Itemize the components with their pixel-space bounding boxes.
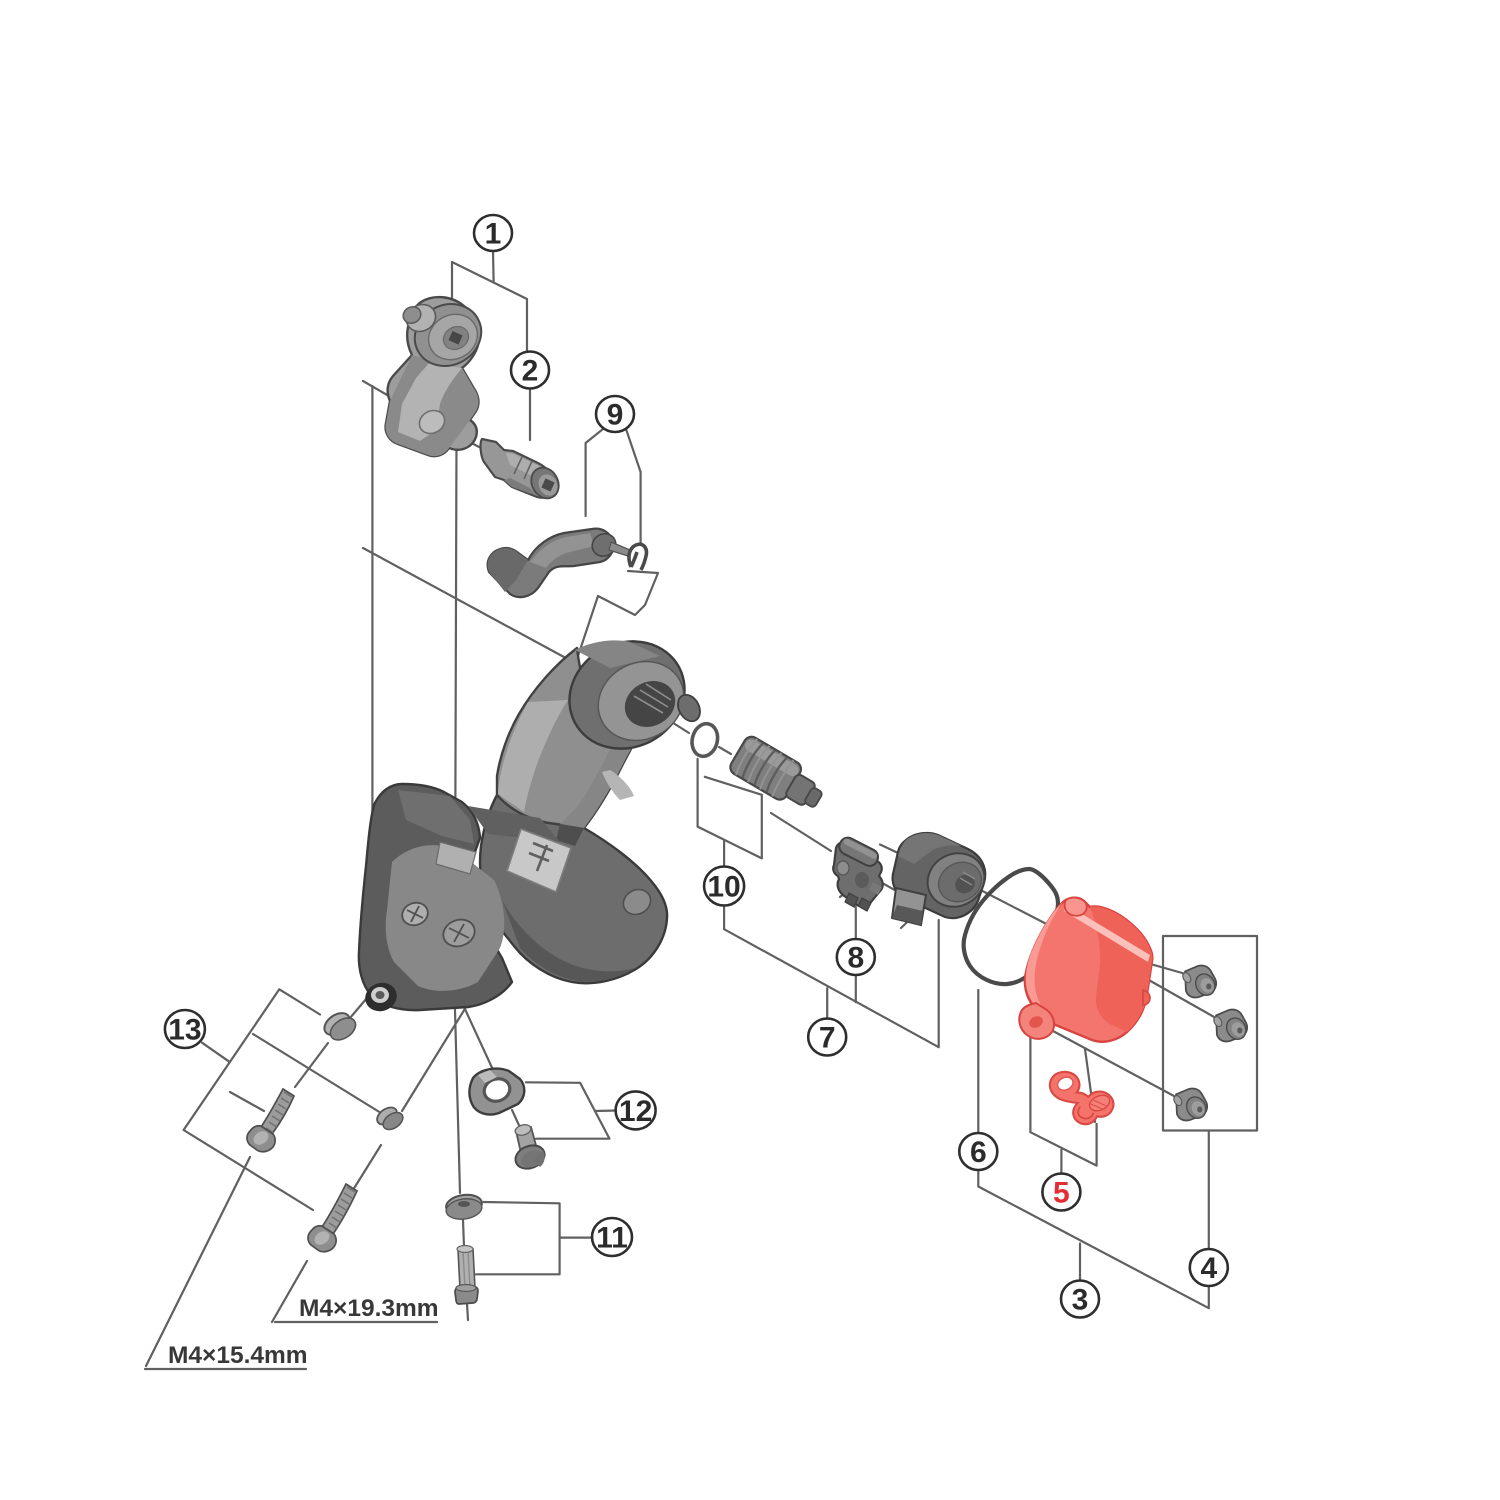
svg-text:13: 13 <box>168 1014 201 1047</box>
svg-text:3: 3 <box>1072 1284 1089 1317</box>
svg-text:7: 7 <box>819 1022 836 1055</box>
svg-text:M4×19.3mm: M4×19.3mm <box>299 1295 439 1322</box>
svg-text:8: 8 <box>847 942 864 975</box>
svg-text:M4×15.4mm: M4×15.4mm <box>168 1342 308 1369</box>
svg-text:1: 1 <box>485 218 502 251</box>
svg-text:6: 6 <box>970 1136 987 1169</box>
svg-text:11: 11 <box>596 1222 628 1255</box>
svg-text:5: 5 <box>1053 1177 1070 1210</box>
svg-text:10: 10 <box>707 871 740 904</box>
svg-text:2: 2 <box>522 355 539 388</box>
svg-text:4: 4 <box>1200 1252 1217 1285</box>
svg-text:12: 12 <box>619 1095 652 1128</box>
svg-text:9: 9 <box>607 399 624 432</box>
